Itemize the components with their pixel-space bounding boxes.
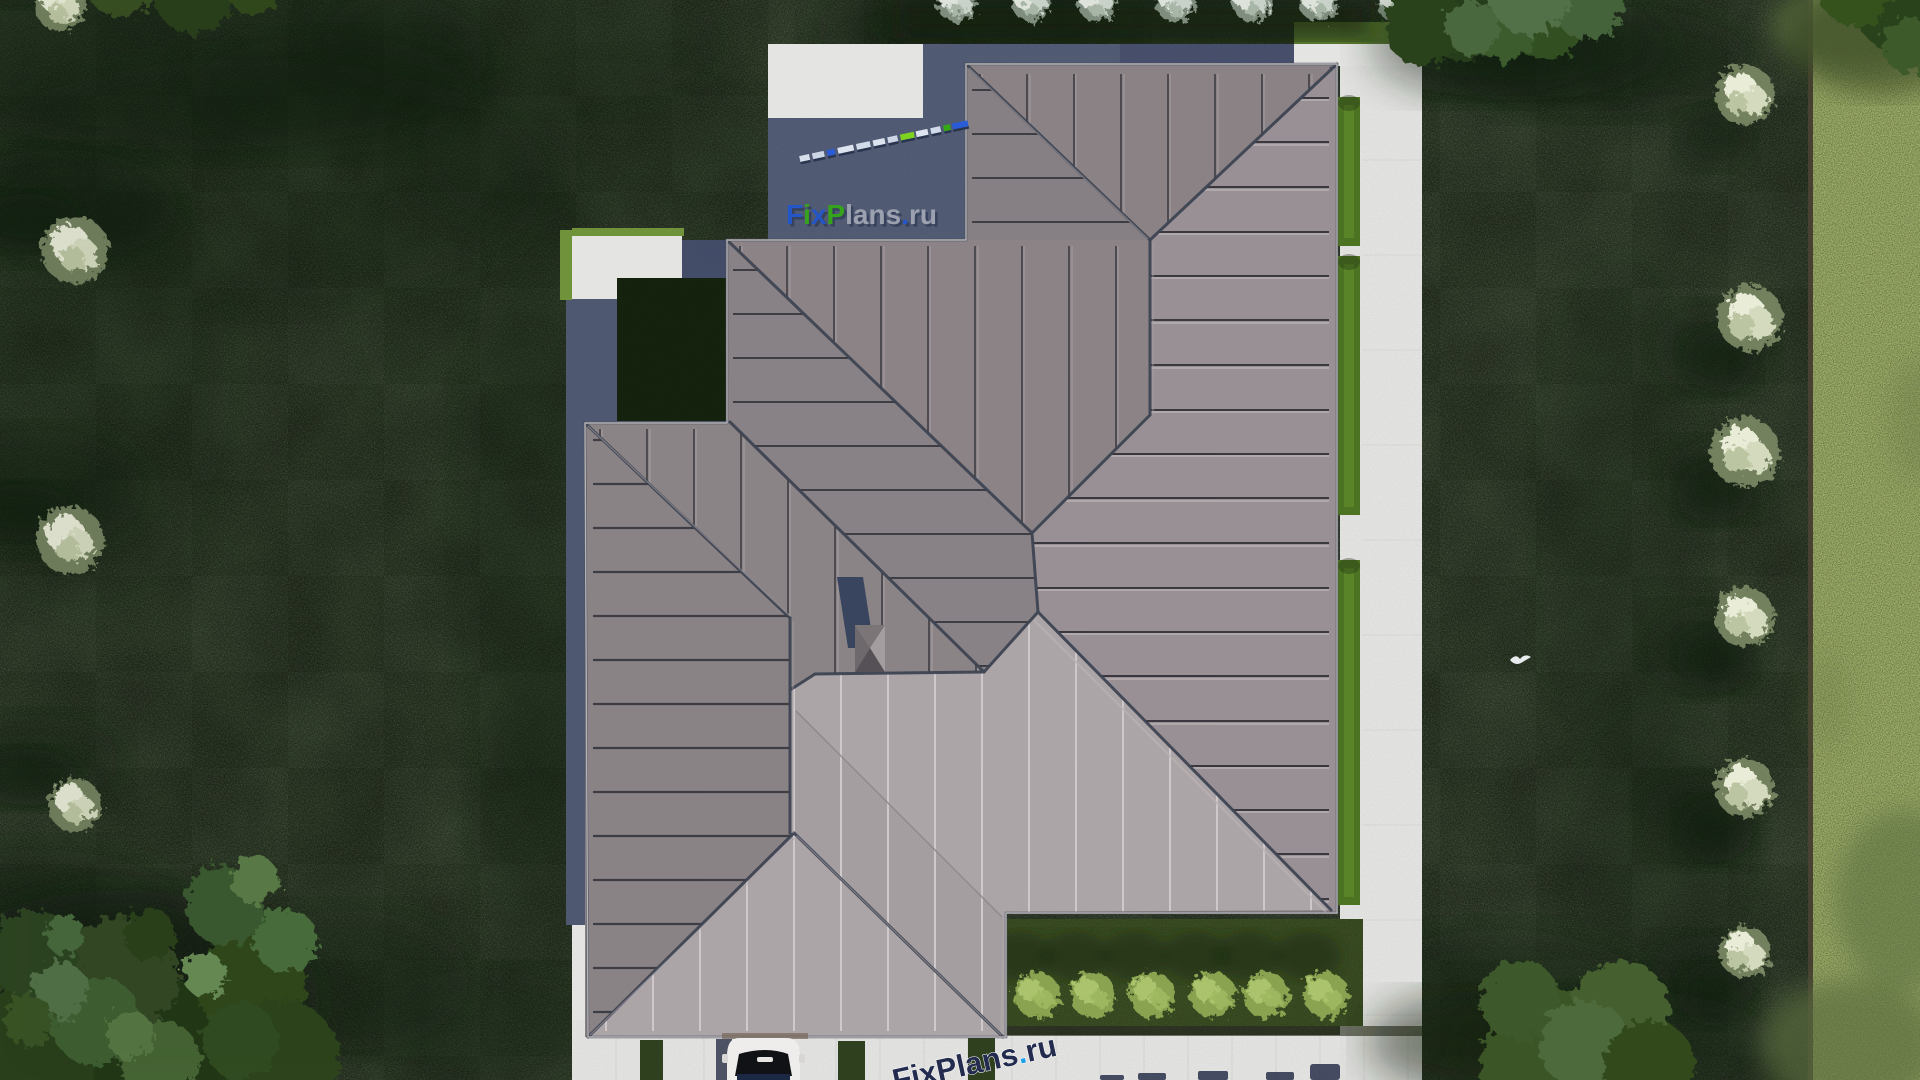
- svg-text:FixPlans.ru: FixPlans.ru: [786, 199, 937, 230]
